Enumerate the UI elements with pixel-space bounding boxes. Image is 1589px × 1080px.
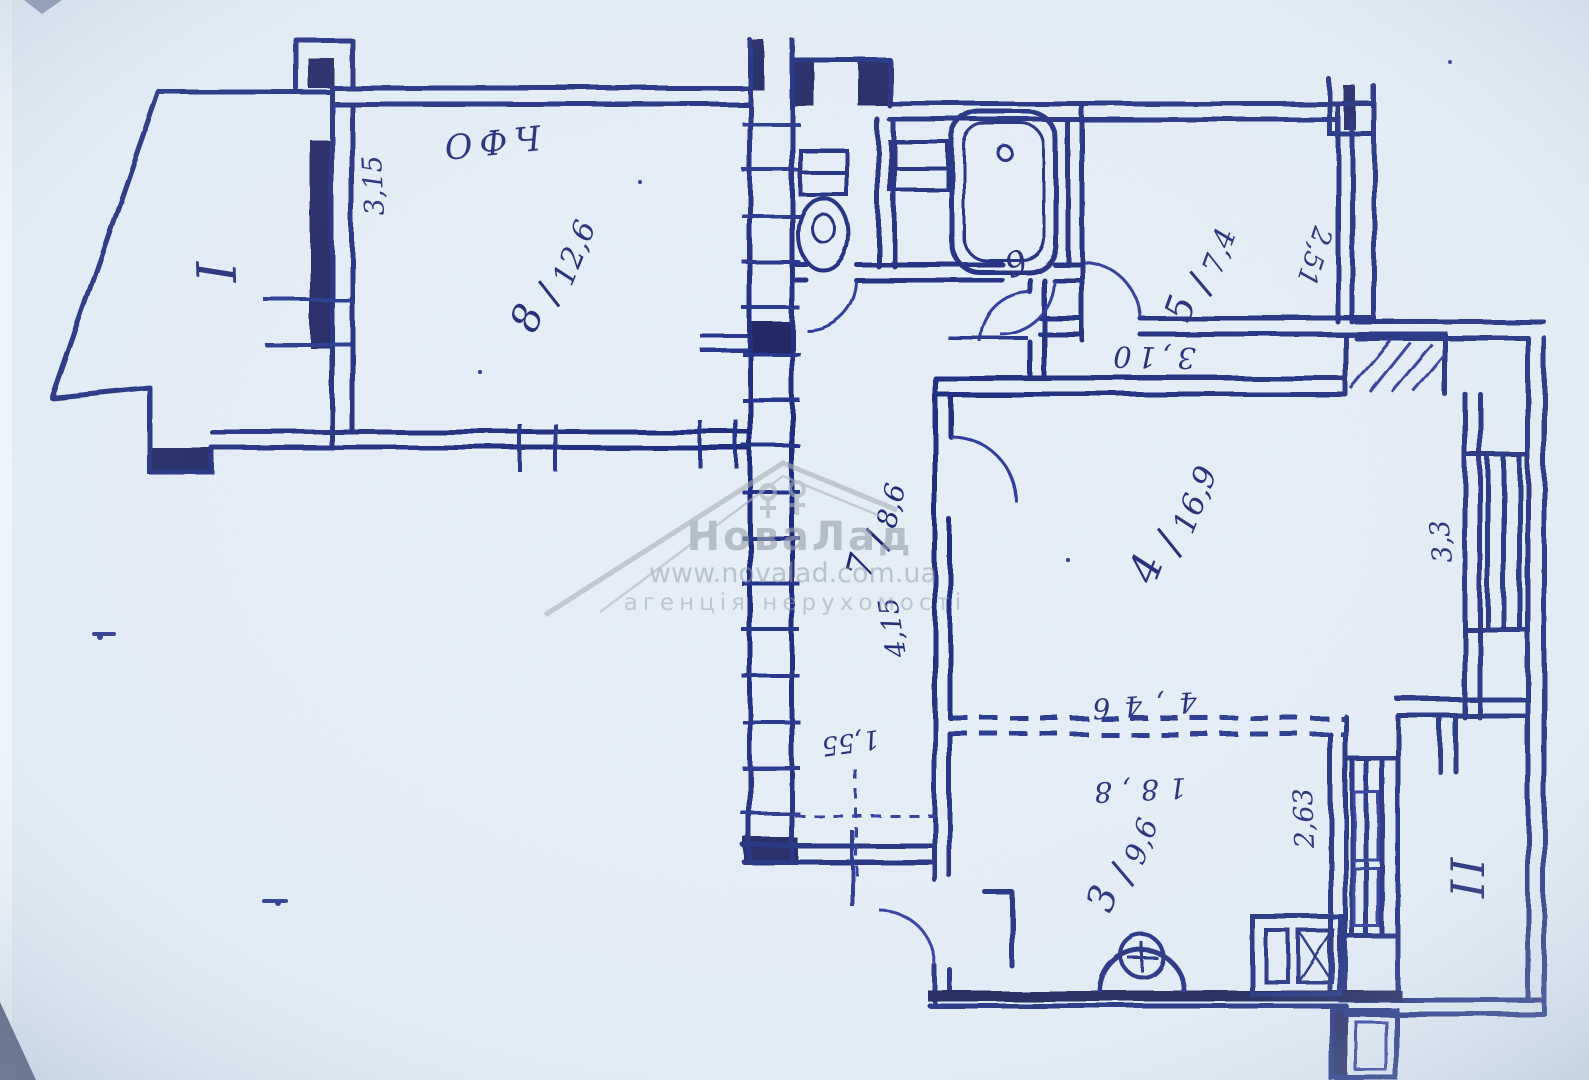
- photo-vignette: [0, 0, 1589, 1080]
- floor-plan-scan: 8 12,6 5 7,4 4 16,9 3 9,6 7 8,6 6 3,15 2…: [0, 0, 1589, 1080]
- scanned-floor-plan-photo: 8 12,6 5 7,4 4 16,9 3 9,6 7 8,6 6 3,15 2…: [0, 0, 1589, 1080]
